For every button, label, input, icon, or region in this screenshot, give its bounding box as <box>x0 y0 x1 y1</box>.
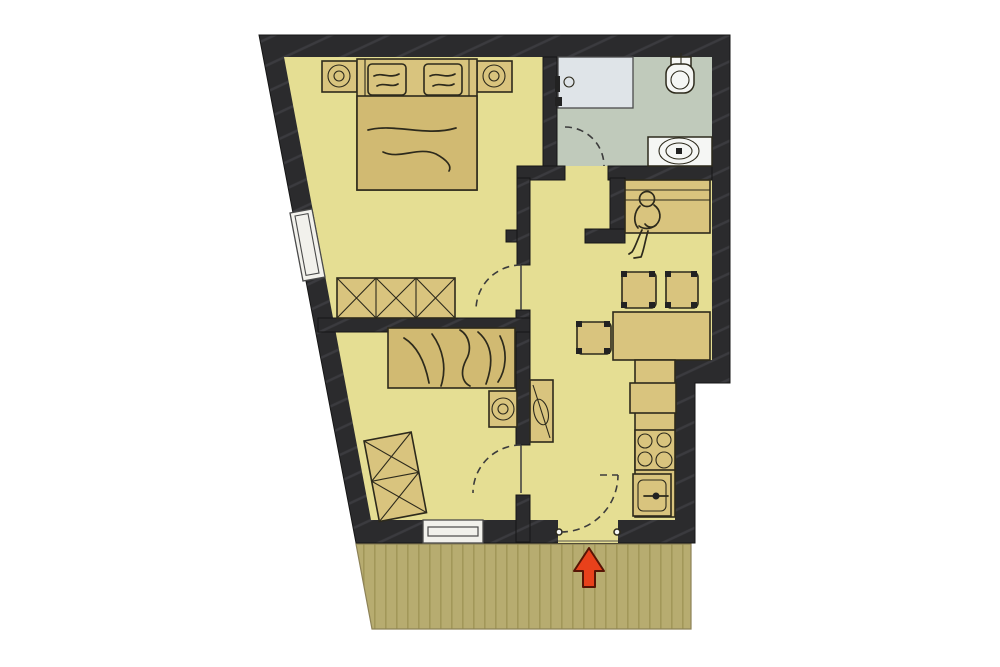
double-bed <box>357 59 477 190</box>
dining-chair-2 <box>665 271 698 308</box>
wardrobe-bedroom1 <box>337 278 455 318</box>
dining-chair-1 <box>621 271 656 308</box>
entry-cabinet <box>530 380 553 442</box>
floor-plan-canvas <box>0 0 1000 667</box>
floor-plan-drawing <box>0 0 1000 667</box>
nightstand-right <box>477 61 512 92</box>
shower <box>555 57 633 108</box>
terrace-deck <box>356 544 691 629</box>
bench-seat <box>625 180 710 233</box>
kitchen-sink <box>633 474 671 516</box>
single-bed <box>388 328 515 388</box>
cooktop <box>635 430 675 470</box>
dining-table <box>613 312 710 360</box>
dining-chair-3 <box>576 321 611 354</box>
nightstand-bedroom2 <box>489 391 517 427</box>
window-bedroom2 <box>423 520 483 543</box>
nightstand-left <box>322 61 357 92</box>
washbasin <box>648 137 712 166</box>
